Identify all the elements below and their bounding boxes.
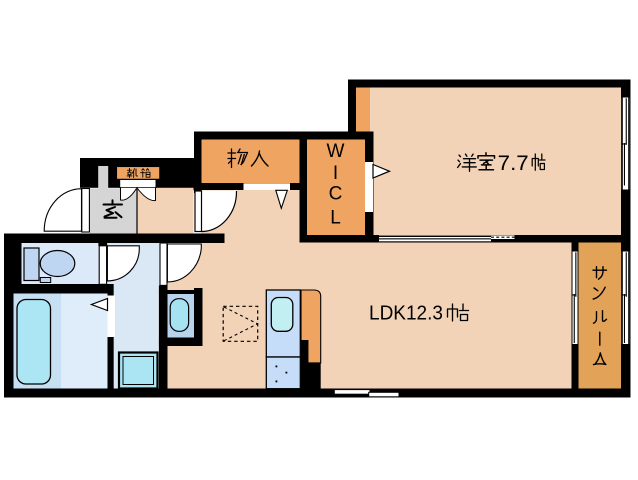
svg-text:LDK12.3: LDK12.3 xyxy=(369,302,443,324)
svg-text:7.7: 7.7 xyxy=(498,152,529,175)
svg-text:L: L xyxy=(330,208,341,229)
svg-text:C: C xyxy=(329,184,343,205)
svg-text:I: I xyxy=(333,163,338,184)
svg-text:W: W xyxy=(327,141,345,162)
